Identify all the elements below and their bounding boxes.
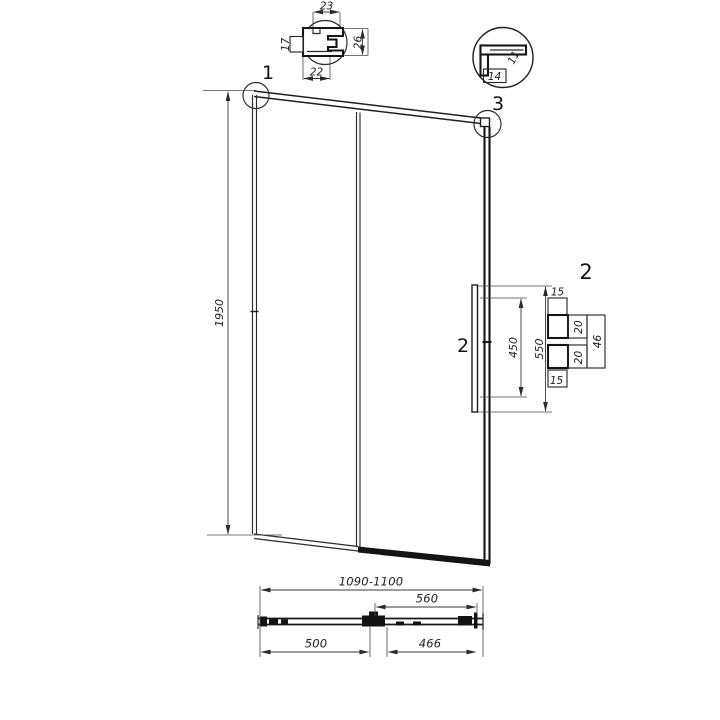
drawing-svg: 23 17 22 26 14 11	[0, 0, 720, 720]
plan-view: 1090-1100 560 500 466	[258, 575, 483, 658]
bottom-rail-sliding	[358, 547, 490, 567]
dimension-label: 22	[310, 67, 324, 79]
handle-section-detail: 15 20 20 46 15 2	[548, 260, 605, 387]
handle-block-lower	[548, 345, 568, 368]
handle-elevation: 450 550 2	[457, 285, 552, 412]
dimension-label: 450	[507, 337, 520, 358]
detail-box	[548, 298, 567, 315]
callout-label-2: 2	[457, 335, 469, 357]
shower-door-technical-drawing: 23 17 22 26 14 11	[0, 0, 720, 720]
height-dimension: 1950	[203, 91, 282, 536]
dimension-label: 550	[533, 339, 546, 360]
wall-fitting	[260, 617, 267, 627]
dimension-label: 15	[550, 375, 564, 387]
left-wall-profile	[253, 95, 257, 534]
corner-bracket	[481, 118, 490, 127]
dimension-label: 500	[305, 637, 328, 651]
callout-label-1: 1	[262, 62, 274, 84]
fitting	[281, 620, 288, 625]
corner-joint-detail: 14 11	[473, 28, 533, 88]
handle-block-upper	[548, 315, 568, 338]
callout-label-3: 3	[492, 93, 504, 115]
top-rail	[254, 91, 489, 125]
end-stopper	[474, 613, 478, 629]
dimension-label: 15	[551, 287, 565, 299]
dimension-label: 14	[488, 71, 501, 83]
right-stile	[485, 126, 490, 564]
dimension-label: 20	[573, 320, 585, 334]
dimension-label: 17	[280, 38, 292, 52]
fitting	[413, 622, 421, 626]
center-roller	[362, 616, 385, 627]
dim-extension	[313, 12, 340, 27]
handle-bar	[472, 285, 478, 412]
door-elevation: 1 3	[243, 62, 504, 567]
bottom-rail-fixed	[254, 534, 358, 551]
callout-label-2-detail: 2	[579, 260, 592, 284]
center-roller-top	[369, 612, 378, 617]
top-rail-profile-detail: 23 17 22 26	[280, 1, 368, 81]
dim-extension	[370, 627, 387, 657]
dimension-label: 466	[419, 637, 442, 651]
dimension-label: 1950	[213, 299, 226, 327]
end-roller	[458, 616, 472, 626]
dimension-label: 23	[320, 1, 333, 13]
dimension-label: 1090-1100	[339, 575, 403, 589]
wall-fitting	[269, 619, 278, 626]
dimension-label: 560	[416, 592, 439, 606]
dimension-label: 20	[573, 351, 585, 365]
dimension-label: 26	[353, 36, 365, 50]
fitting	[396, 622, 404, 626]
center-mullion	[357, 112, 361, 548]
dimension-label: 46	[592, 335, 604, 349]
